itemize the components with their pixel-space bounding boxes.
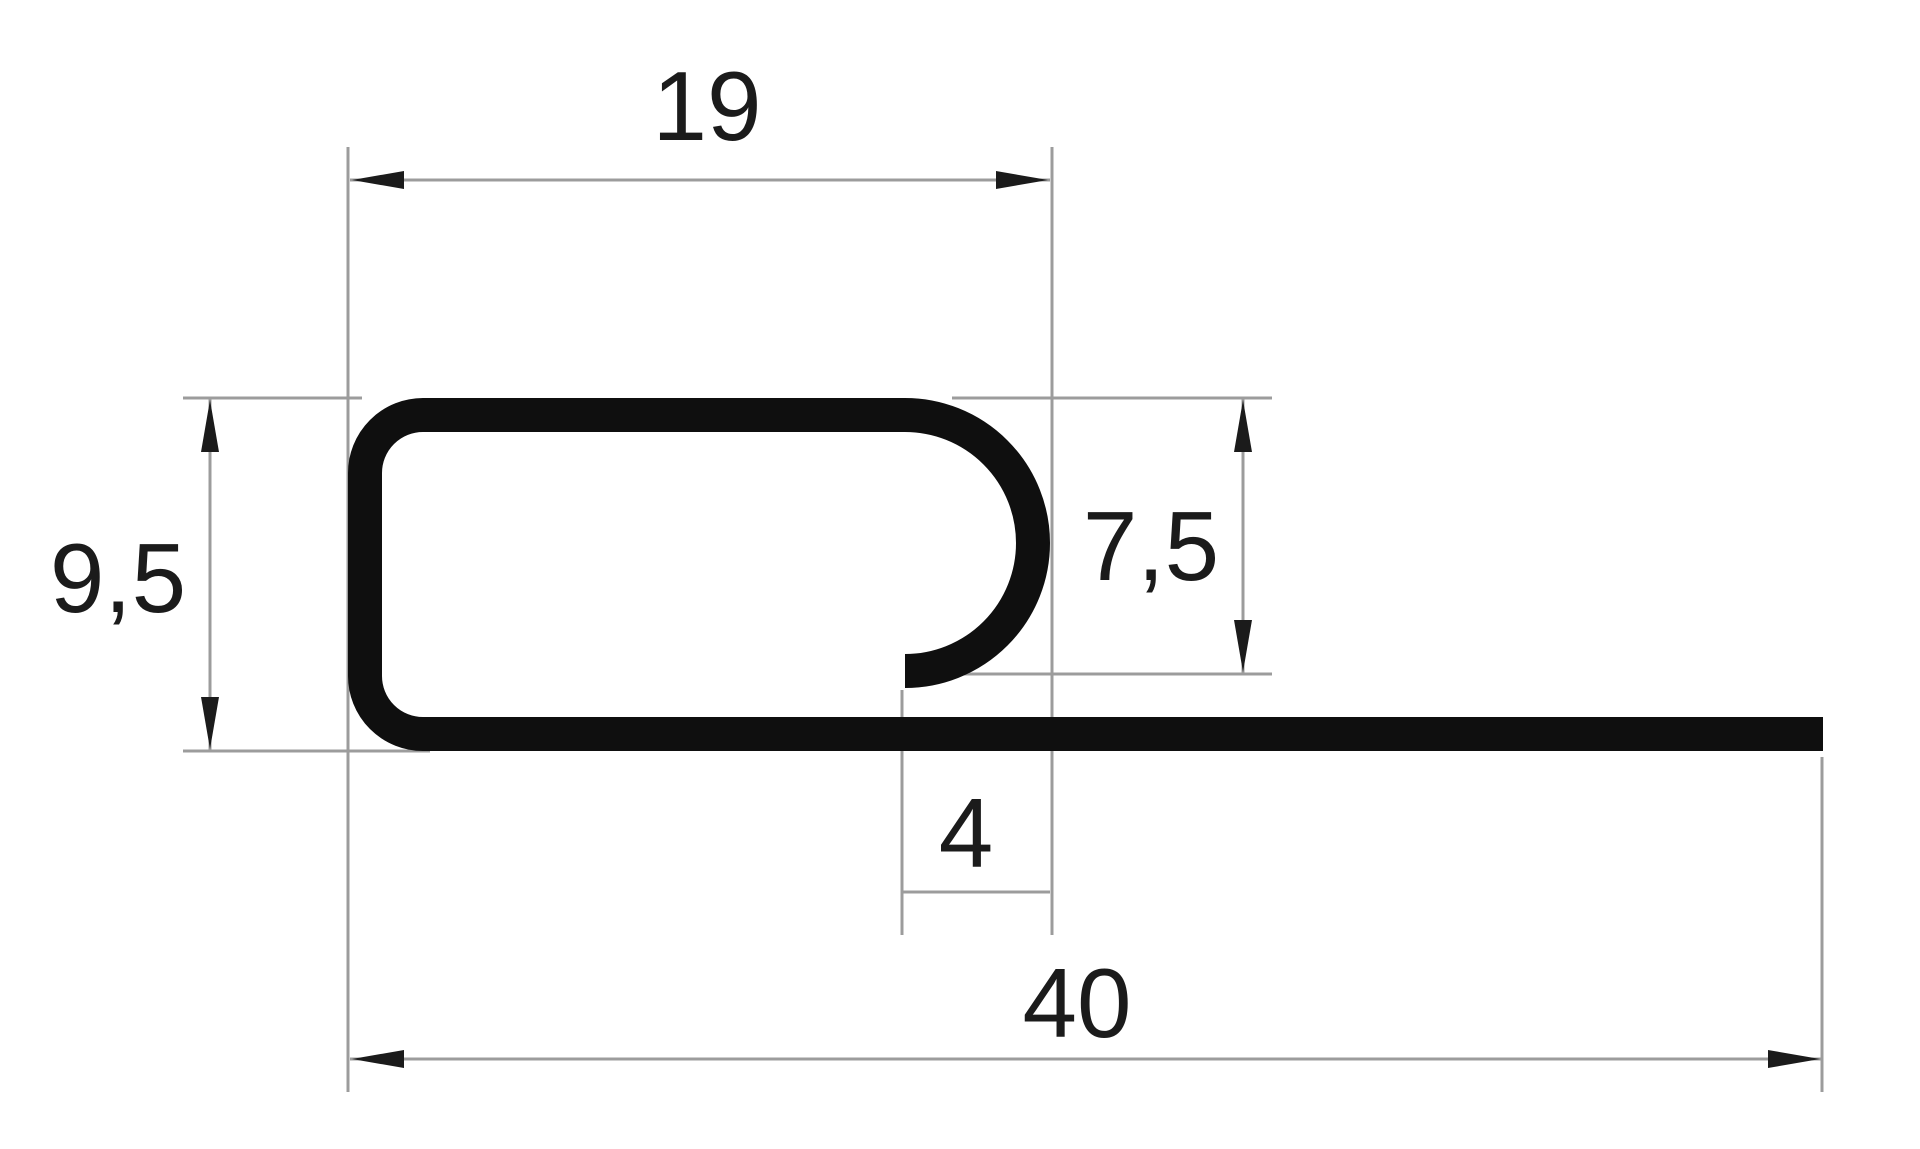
arrow-down-icon [201,697,219,749]
dim-95-label: 9,5 [50,523,186,633]
arrow-left-icon [352,171,404,189]
drawing-canvas: 19 9,5 7,5 4 [0,0,1920,1149]
arrow-right-icon [996,171,1048,189]
technical-drawing: 19 9,5 7,5 4 [0,0,1920,1149]
dim-4-label: 4 [939,778,994,888]
dim-40-label: 40 [1022,948,1131,1058]
arrow-right-icon [1768,1050,1820,1068]
dimension-top-width: 19 [350,51,1050,189]
dim-19-label: 19 [652,51,761,161]
arrow-left-icon [352,1050,404,1068]
arrow-up-icon [1234,400,1252,452]
dim-75-label: 7,5 [1083,491,1219,601]
dimension-total-width: 40 [350,757,1822,1092]
arrow-down-icon [1234,620,1252,672]
arrow-up-icon [201,400,219,452]
